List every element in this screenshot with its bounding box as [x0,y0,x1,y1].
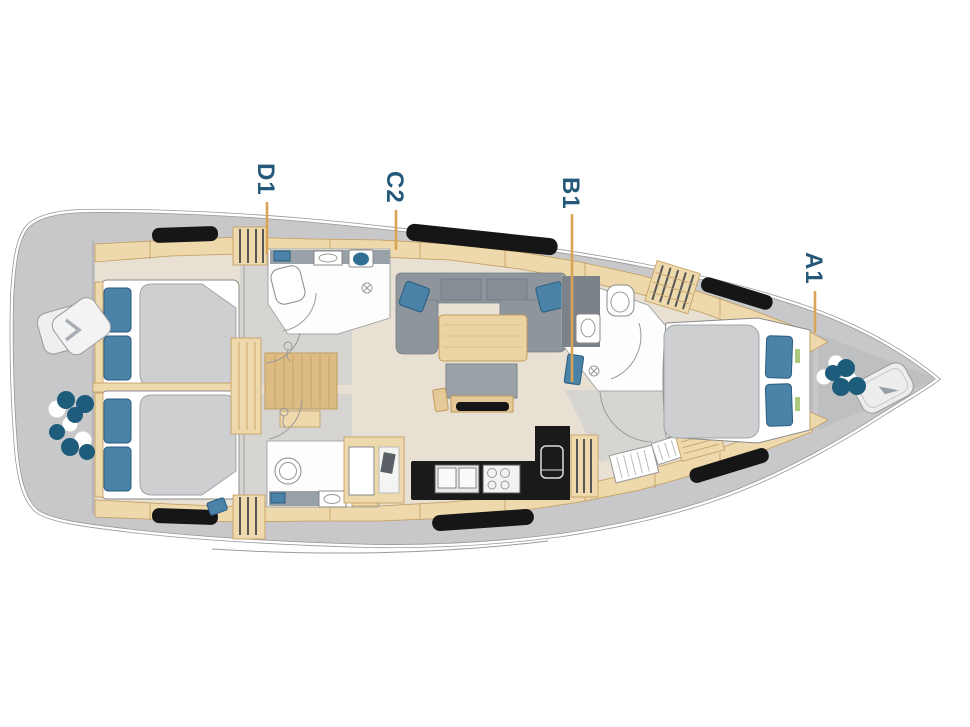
sofa-cushion [487,279,527,300]
label-b1: B1 [557,177,584,210]
aft-cabin-upper [95,280,239,388]
reading-light [795,397,800,411]
sofa-cushion [441,279,481,300]
hull-window [152,226,218,243]
toilet-icon [275,458,301,484]
wardrobe-louver-top [233,227,267,265]
sink-icon [314,251,342,265]
sink-icon [576,314,600,343]
duvet [140,284,236,386]
label-c2: C2 [381,171,408,204]
headboard [95,393,103,497]
aft-cabin-lower [95,391,239,499]
pillow [765,336,792,379]
label-d1: D1 [252,163,279,196]
hull-window [152,508,218,525]
duvet [664,325,759,438]
pillow [104,399,131,443]
reading-light [795,349,800,363]
pillow [765,384,792,427]
cabinet-door [349,447,374,495]
floorplan-canvas: D1 C2 B1 A1 [0,0,970,727]
towel [271,493,285,503]
duvet [140,395,236,495]
label-a1: A1 [800,252,827,285]
wardrobe-louver-bottom [233,495,265,539]
pillow [104,447,131,491]
bath-mat [564,354,584,385]
toilet-bowl [353,253,369,266]
head-upper [268,249,390,334]
towel [274,251,290,261]
pillow [104,336,131,380]
sink-icon [319,491,346,507]
yacht-floorplan-diagram: D1 C2 B1 A1 [0,0,970,727]
salon-table [439,315,527,361]
stove-icon [483,465,520,493]
